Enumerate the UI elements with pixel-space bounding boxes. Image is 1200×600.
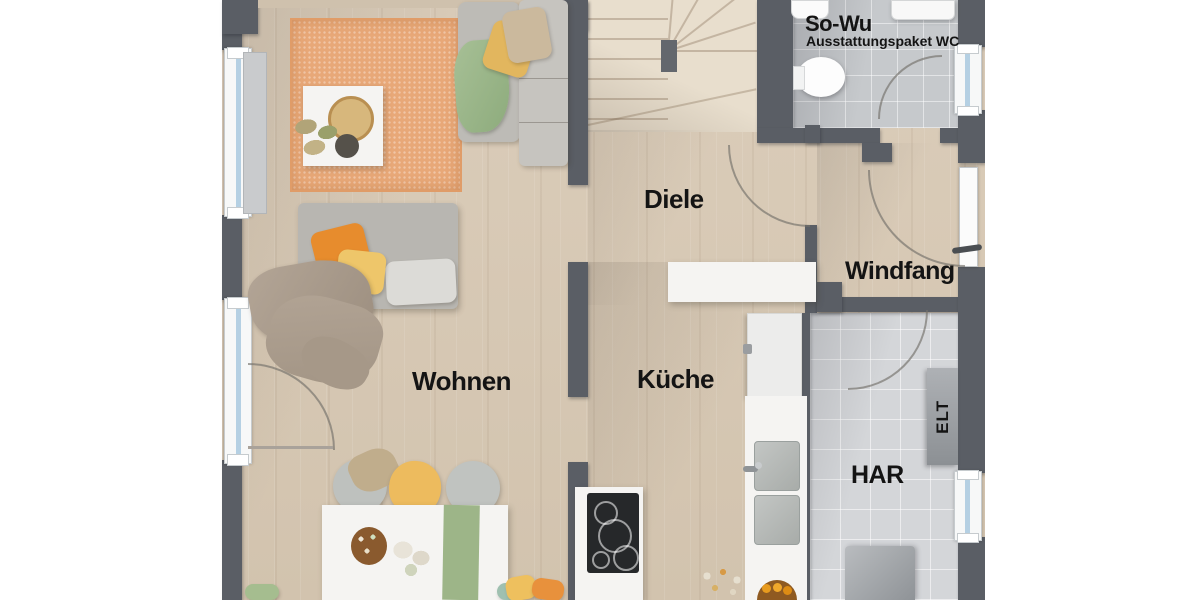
label-wc-subtitle: Ausstattungspaket WC — [806, 33, 959, 49]
wall-right-a — [958, 0, 985, 47]
bench-pillow-green-left — [245, 584, 279, 600]
window-wc — [954, 45, 982, 114]
wall-mid-center — [568, 262, 588, 397]
wall-chimney-pillar — [862, 143, 892, 162]
label-har: HAR — [851, 461, 904, 490]
wall-right-d — [958, 537, 985, 600]
kitchen-har-door-leaf — [747, 313, 802, 398]
table-runner — [442, 505, 480, 600]
label-kueche: Küche — [637, 364, 714, 395]
plant-vase — [335, 134, 359, 158]
wall-right-b — [958, 110, 985, 163]
wall-mid-upper — [568, 0, 588, 185]
radiator — [243, 52, 267, 214]
label-wohnen: Wohnen — [412, 366, 511, 397]
sink-basin-lower — [754, 495, 800, 545]
elt-label: ELT — [933, 400, 953, 434]
wall-top-left-corner — [222, 0, 258, 34]
label-windfang: Windfang — [845, 257, 955, 286]
table-flowers — [383, 530, 439, 584]
label-diele: Diele — [644, 184, 704, 215]
kitchen-door-handle — [743, 344, 752, 354]
wall-divider-nub — [805, 125, 820, 143]
faucet-knob — [755, 462, 762, 469]
terrace-door-leaf — [248, 446, 333, 449]
wall-windfang-corner — [817, 282, 842, 312]
cooktop — [587, 493, 639, 573]
margin-left — [0, 0, 222, 600]
stair-newel-post — [661, 40, 677, 72]
wc-boiler — [891, 0, 955, 20]
har-appliance — [845, 546, 915, 600]
stair-winder-line — [668, 50, 758, 52]
pillow-white-daybed — [385, 258, 457, 306]
kitchen-flowers — [695, 566, 750, 600]
wall-stair-wc — [757, 0, 793, 128]
wall-left-lower — [222, 460, 242, 600]
window-har — [954, 471, 982, 541]
elt-panel: ELT — [927, 368, 958, 465]
stair-winder-line — [667, 0, 747, 52]
staircase — [588, 0, 757, 132]
floor-plan: ELT So-Wu Ausstattungspaket WC Diele Win… — [0, 0, 1200, 600]
wall-left-middle — [222, 215, 242, 300]
wall-right-c — [958, 267, 985, 473]
pillow-tan-sofa — [501, 6, 553, 65]
table-bowl — [351, 527, 387, 565]
sideboard — [668, 262, 816, 302]
toilet-tank — [793, 66, 805, 90]
margin-right — [985, 0, 1200, 600]
